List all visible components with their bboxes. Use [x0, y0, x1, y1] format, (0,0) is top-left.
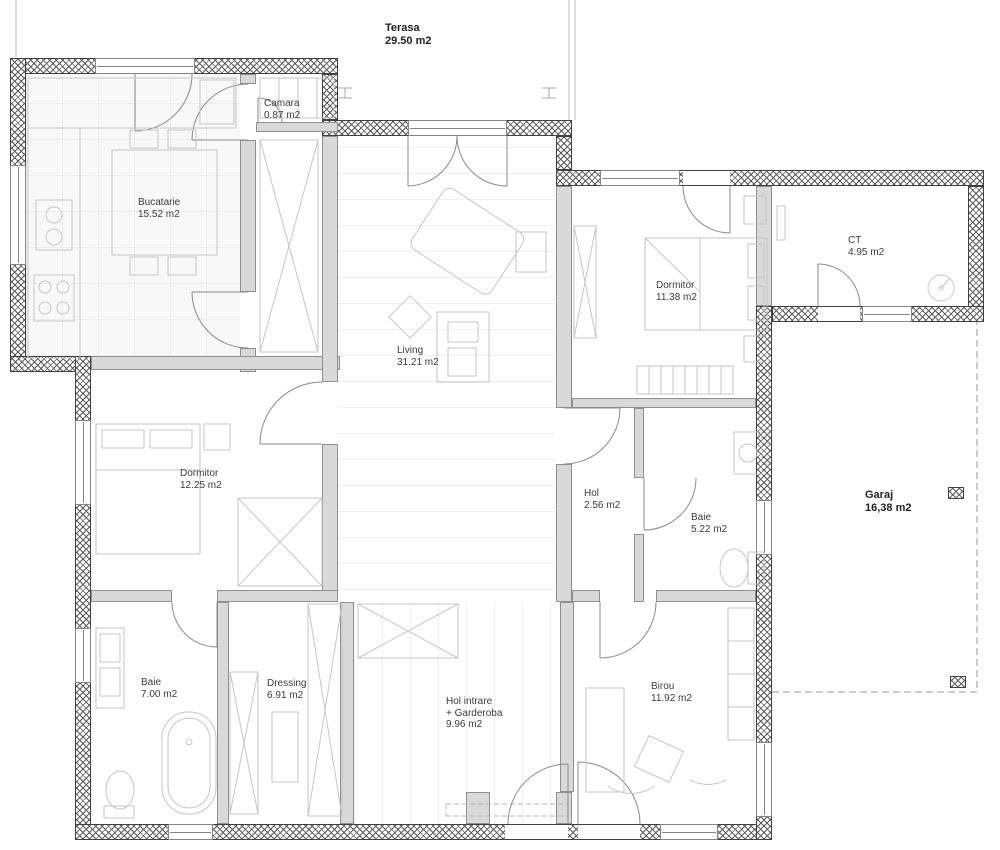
room-area: 2.56 m2 [584, 500, 620, 512]
room-name: Living [397, 345, 439, 357]
side-table [516, 232, 546, 272]
room-name: Terasa [385, 22, 431, 35]
room-name: Baie [691, 512, 727, 524]
room-area: 4.95 m2 [848, 247, 884, 259]
room-name: Baie [141, 677, 177, 689]
bathtub [162, 712, 216, 814]
kitchen-counter [28, 78, 236, 128]
room-name-2: + Garderoba [446, 708, 502, 720]
room-name: Dormitor [180, 468, 222, 480]
room-name: Hol [584, 488, 620, 500]
room-area: 11.92 m2 [651, 693, 692, 705]
room-label-hol: Hol 2.56 m2 [584, 488, 620, 511]
room-label-camara: Camara 0.87 m2 [264, 98, 300, 121]
room-label-baie-2: Baie 7.00 m2 [141, 677, 177, 700]
room-area: 5.22 m2 [691, 524, 727, 536]
room-label-dormitor-1: Dormitor 11.38 m2 [656, 280, 697, 303]
room-name: Camara [264, 98, 300, 110]
room-area: 7.00 m2 [141, 689, 177, 701]
room-label-dressing: Dressing 6.91 m2 [267, 678, 306, 701]
room-name: Dormitor [656, 280, 697, 292]
room-name: Garaj [865, 489, 911, 502]
room-area: 11.38 m2 [656, 292, 697, 304]
room-area: 15.52 m2 [138, 209, 180, 221]
nightstand [204, 424, 230, 450]
room-area: 16,38 m2 [865, 502, 911, 515]
column-icon [338, 88, 556, 98]
radiator [777, 206, 785, 240]
room-area: 12.25 m2 [180, 480, 222, 492]
stove [34, 275, 74, 321]
room-name: Dressing [267, 678, 306, 690]
room-area: 0.87 m2 [264, 110, 300, 122]
bench [272, 712, 298, 782]
room-label-ct: CT 4.95 m2 [848, 235, 884, 258]
room-name: Hol intrare [446, 696, 502, 708]
floor-plan: Terasa 29.50 m2 Camara 0.87 m2 Bucatarie… [0, 0, 1000, 850]
room-name: CT [848, 235, 884, 247]
room-area: 6.91 m2 [267, 690, 306, 702]
room-label-hol-intrare: Hol intrare + Garderoba 9.96 m2 [446, 696, 502, 731]
fridge [200, 80, 234, 124]
room-label-bucatarie: Bucatarie 15.52 m2 [138, 197, 180, 220]
room-area: 9.96 m2 [446, 719, 502, 731]
entry-steps [446, 804, 568, 816]
bathroom-sink [734, 432, 762, 474]
room-name: Birou [651, 681, 692, 693]
room-area: 31.21 m2 [397, 357, 439, 369]
room-label-terasa: Terasa 29.50 m2 [385, 22, 431, 47]
room-label-birou: Birou 11.92 m2 [651, 681, 692, 704]
nightstand [744, 196, 766, 224]
toilet [106, 771, 134, 809]
office-chair [635, 736, 684, 783]
room-label-dormitor-2: Dormitor 12.25 m2 [180, 468, 222, 491]
armchair [408, 185, 527, 297]
room-label-living: Living 31.21 m2 [397, 345, 439, 368]
room-label-baie-1: Baie 5.22 m2 [691, 512, 727, 535]
room-area: 29.50 m2 [385, 35, 431, 48]
room-label-garaj: Garaj 16,38 m2 [865, 489, 911, 514]
room-name: Bucatarie [138, 197, 180, 209]
nightstand [744, 336, 766, 362]
toilet [748, 552, 764, 584]
